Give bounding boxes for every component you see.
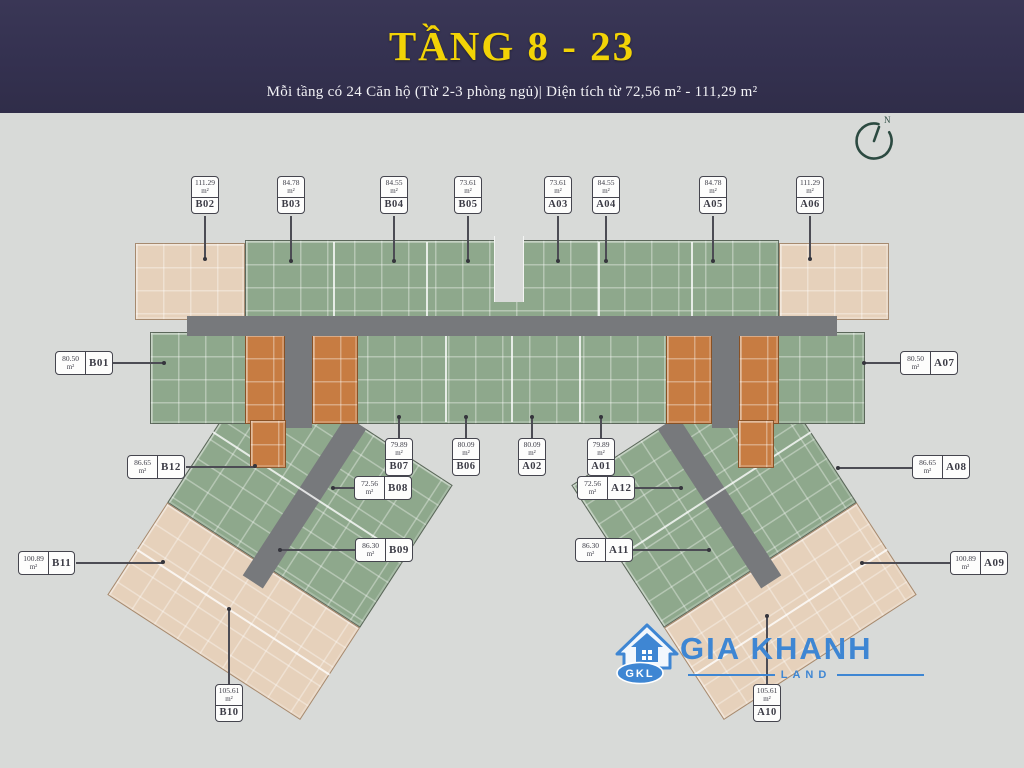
unit-area-unit: m² <box>589 450 613 457</box>
brand-rule-left <box>688 674 775 677</box>
unit-leader-dot-a04 <box>604 259 608 263</box>
unit-area-value: 86.65 <box>913 459 942 467</box>
unit-area: 72.56m² <box>578 477 608 499</box>
unit-area-unit: m² <box>901 364 930 371</box>
unit-area-value: 84.55 <box>382 179 406 187</box>
unit-area-value: 105.61 <box>755 687 779 695</box>
unit-area: 86.30m² <box>356 539 386 561</box>
unit-leader-line-b07 <box>398 417 400 438</box>
unit-leader-line-a05 <box>712 216 714 262</box>
unit-area-value: 79.89 <box>589 441 613 449</box>
unit-leader-dot-a10 <box>765 614 769 618</box>
unit-area: 111.29m² <box>192 177 218 198</box>
unit-leader-dot-a11 <box>707 548 711 552</box>
unit-label-a01: 79.89m²A01 <box>587 438 615 476</box>
unit-leader-line-b06 <box>465 417 467 438</box>
unit-code: A11 <box>606 539 632 561</box>
unit-area-value: 100.89 <box>19 555 48 563</box>
unit-leader-line-a03 <box>557 216 559 262</box>
unit-leader-dot-a06 <box>808 257 812 261</box>
unit-leader-line-b12 <box>186 466 255 468</box>
compass-north-label: N <box>884 115 891 125</box>
unit-leader-line-b02 <box>204 216 206 260</box>
unit-area-value: 73.61 <box>546 179 570 187</box>
unit-area-value: 80.50 <box>901 355 930 363</box>
unit-area-unit: m² <box>755 696 779 703</box>
unit-area-unit: m² <box>913 468 942 475</box>
unit-leader-line-a01 <box>600 417 602 438</box>
unit-area-unit: m² <box>520 450 544 457</box>
unit-area: 100.89m² <box>951 552 981 574</box>
unit-code: A01 <box>588 460 614 476</box>
unit-code: B08 <box>385 477 411 499</box>
unit-code: B10 <box>216 706 242 722</box>
unit-area: 80.09m² <box>519 439 545 460</box>
unit-leader-line-a04 <box>605 216 607 262</box>
unit-area: 111.29m² <box>797 177 823 198</box>
unit-code: B07 <box>386 460 412 476</box>
unit-area-value: 84.78 <box>279 179 303 187</box>
main-corridor <box>187 316 837 336</box>
unit-label-a06: 111.29m²A06 <box>796 176 824 214</box>
unit-area-value: 84.78 <box>701 179 725 187</box>
unit-leader-line-b05 <box>467 216 469 262</box>
unit-leader-line-b03 <box>290 216 292 262</box>
unit-code: B11 <box>49 552 74 574</box>
unit-leader-dot-b07 <box>397 415 401 419</box>
unit-label-b06: 80.09m²B06 <box>452 438 480 476</box>
unit-label-b10: 105.61m²B10 <box>215 684 243 722</box>
core-right-stub <box>738 420 774 468</box>
unit-leader-line-a07 <box>864 362 900 364</box>
unit-area: 84.55m² <box>381 177 407 198</box>
unit-area-value: 80.09 <box>520 441 544 449</box>
unit-leader-line-b09 <box>281 549 355 551</box>
unit-area: 86.30m² <box>576 539 606 561</box>
unit-code: A08 <box>943 456 969 478</box>
unit-area-value: 72.56 <box>578 480 607 488</box>
unit-area: 73.61m² <box>545 177 571 198</box>
unit-area-value: 80.50 <box>56 355 85 363</box>
unit-code: A07 <box>931 352 957 374</box>
unit-area-value: 86.30 <box>356 542 385 550</box>
brand-logo: GKL <box>613 623 681 690</box>
unit-leader-line-b04 <box>393 216 395 262</box>
unit-label-a02: 80.09m²A02 <box>518 438 546 476</box>
unit-leader-line-a06 <box>809 216 811 260</box>
unit-area-value: 73.61 <box>456 179 480 187</box>
unit-label-b11: 100.89m²B11 <box>18 551 75 575</box>
unit-code: B06 <box>453 460 479 476</box>
unit-leader-dot-a08 <box>836 466 840 470</box>
unit-area-unit: m² <box>382 188 406 195</box>
unit-code: A03 <box>545 198 571 214</box>
unit-leader-dot-b02 <box>203 257 207 261</box>
page-title: TẦNG 8 - 23 <box>0 22 1024 70</box>
unit-code: A02 <box>519 460 545 476</box>
unit-leader-line-a08 <box>838 467 912 469</box>
unit-leader-dot-b12 <box>253 464 257 468</box>
unit-leader-line-b08 <box>334 487 354 489</box>
unit-label-a11: 86.30m²A11 <box>575 538 633 562</box>
brand-house-icon: GKL <box>613 623 681 685</box>
unit-area-unit: m² <box>546 188 570 195</box>
unit-area: 84.78m² <box>278 177 304 198</box>
unit-leader-line-b11 <box>76 562 163 564</box>
unit-code: B02 <box>192 198 218 214</box>
unit-label-b05: 73.61m²B05 <box>454 176 482 214</box>
unit-area: 105.61m² <box>216 685 242 706</box>
unit-leader-dot-a12 <box>679 486 683 490</box>
unit-area: 105.61m² <box>754 685 780 706</box>
unit-area: 84.78m² <box>700 177 726 198</box>
unit-area-value: 72.56 <box>355 480 384 488</box>
unit-leader-dot-a02 <box>530 415 534 419</box>
unit-area: 80.50m² <box>56 352 86 374</box>
unit-leader-dot-b03 <box>289 259 293 263</box>
unit-leader-line-a09 <box>863 562 950 564</box>
unit-area-unit: m² <box>798 188 822 195</box>
unit-leader-line-b01 <box>113 362 165 364</box>
brand-subname: LAND <box>775 669 838 681</box>
unit-area-unit: m² <box>578 489 607 496</box>
unit-label-a07: 80.50m²A07 <box>900 351 958 375</box>
unit-area: 84.55m² <box>593 177 619 198</box>
unit-area-unit: m² <box>951 564 980 571</box>
unit-leader-dot-b08 <box>331 486 335 490</box>
unit-code: B05 <box>455 198 481 214</box>
compass-icon: N <box>851 114 897 167</box>
unit-label-b03: 84.78m²B03 <box>277 176 305 214</box>
unit-code: B09 <box>386 539 412 561</box>
unit-leader-dot-b10 <box>227 607 231 611</box>
unit-leader-line-b10 <box>228 609 230 684</box>
core-left-stub <box>250 420 286 468</box>
brand-abbr: GKL <box>625 668 654 680</box>
unit-area: 86.65m² <box>913 456 943 478</box>
unit-leader-dot-a09 <box>860 561 864 565</box>
unit-area-value: 86.65 <box>128 459 157 467</box>
unit-area-unit: m² <box>355 489 384 496</box>
unit-area-unit: m² <box>217 696 241 703</box>
top-row-beige-right-unit <box>779 243 889 320</box>
core-left-b <box>312 334 358 424</box>
core-right-b <box>739 334 779 424</box>
unit-area-unit: m² <box>56 364 85 371</box>
unit-area: 79.89m² <box>588 439 614 460</box>
unit-area-value: 79.89 <box>387 441 411 449</box>
unit-leader-line-a11 <box>633 549 709 551</box>
unit-area-unit: m² <box>594 188 618 195</box>
unit-label-a05: 84.78m²A05 <box>699 176 727 214</box>
unit-area-unit: m² <box>193 188 217 195</box>
unit-leader-dot-a05 <box>711 259 715 263</box>
unit-area: 79.89m² <box>386 439 412 460</box>
unit-code: A06 <box>797 198 823 214</box>
unit-code: B01 <box>86 352 112 374</box>
unit-leader-dot-b01 <box>162 361 166 365</box>
brand-rule-right <box>837 674 924 677</box>
top-row-beige-left-unit <box>135 243 245 320</box>
unit-leader-line-a12 <box>635 487 681 489</box>
unit-area: 80.50m² <box>901 352 931 374</box>
unit-area-unit: m² <box>279 188 303 195</box>
unit-leader-dot-b06 <box>464 415 468 419</box>
unit-leader-dot-b11 <box>161 560 165 564</box>
unit-area-unit: m² <box>456 188 480 195</box>
unit-area-value: 86.30 <box>576 542 605 550</box>
unit-label-b09: 86.30m²B09 <box>355 538 413 562</box>
core-right-a <box>666 334 712 424</box>
unit-label-a08: 86.65m²A08 <box>912 455 970 479</box>
unit-area-unit: m² <box>128 468 157 475</box>
unit-leader-dot-b09 <box>278 548 282 552</box>
unit-area: 100.89m² <box>19 552 49 574</box>
floorplan-page: TẦNG 8 - 23 Mỗi tầng có 24 Căn hộ (Từ 2-… <box>0 0 1024 768</box>
unit-leader-dot-b04 <box>392 259 396 263</box>
unit-code: B04 <box>381 198 407 214</box>
unit-area-unit: m² <box>454 450 478 457</box>
unit-leader-dot-a03 <box>556 259 560 263</box>
unit-code: A12 <box>608 477 634 499</box>
top-row-center-notch <box>494 236 524 302</box>
unit-area: 80.09m² <box>453 439 479 460</box>
page-subtitle: Mỗi tầng có 24 Căn hộ (Từ 2-3 phòng ngủ)… <box>0 84 1024 101</box>
unit-area-value: 111.29 <box>798 179 822 187</box>
brand-subname-row: LAND <box>688 669 924 681</box>
unit-area-value: 80.09 <box>454 441 478 449</box>
unit-leader-dot-a07 <box>862 361 866 365</box>
unit-code: A09 <box>981 552 1007 574</box>
unit-area-value: 100.89 <box>951 555 980 563</box>
core-left-a <box>245 334 285 424</box>
unit-label-a03: 73.61m²A03 <box>544 176 572 214</box>
unit-area-unit: m² <box>701 188 725 195</box>
unit-label-b01: 80.50m²B01 <box>55 351 113 375</box>
unit-label-b04: 84.55m²B04 <box>380 176 408 214</box>
unit-label-b12: 86.65m²B12 <box>127 455 185 479</box>
unit-area-unit: m² <box>356 551 385 558</box>
unit-label-b08: 72.56m²B08 <box>354 476 412 500</box>
unit-code: B12 <box>158 456 184 478</box>
unit-label-b07: 79.89m²B07 <box>385 438 413 476</box>
unit-area-value: 105.61 <box>217 687 241 695</box>
unit-label-a04: 84.55m²A04 <box>592 176 620 214</box>
unit-leader-line-a02 <box>531 417 533 438</box>
unit-label-b02: 111.29m²B02 <box>191 176 219 214</box>
brand-name: GIA KHANH <box>680 631 873 667</box>
unit-area-unit: m² <box>387 450 411 457</box>
unit-area: 73.61m² <box>455 177 481 198</box>
unit-area: 72.56m² <box>355 477 385 499</box>
unit-area-value: 111.29 <box>193 179 217 187</box>
unit-leader-dot-b05 <box>466 259 470 263</box>
unit-code: B03 <box>278 198 304 214</box>
unit-code: A04 <box>593 198 619 214</box>
unit-area-unit: m² <box>19 564 48 571</box>
unit-area: 86.65m² <box>128 456 158 478</box>
unit-area-value: 84.55 <box>594 179 618 187</box>
unit-leader-dot-a01 <box>599 415 603 419</box>
header-band: TẦNG 8 - 23 Mỗi tầng có 24 Căn hộ (Từ 2-… <box>0 0 1024 113</box>
unit-label-a12: 72.56m²A12 <box>577 476 635 500</box>
unit-code: A10 <box>754 706 780 722</box>
unit-area-unit: m² <box>576 551 605 558</box>
unit-label-a09: 100.89m²A09 <box>950 551 1008 575</box>
unit-code: A05 <box>700 198 726 214</box>
unit-label-a10: 105.61m²A10 <box>753 684 781 722</box>
